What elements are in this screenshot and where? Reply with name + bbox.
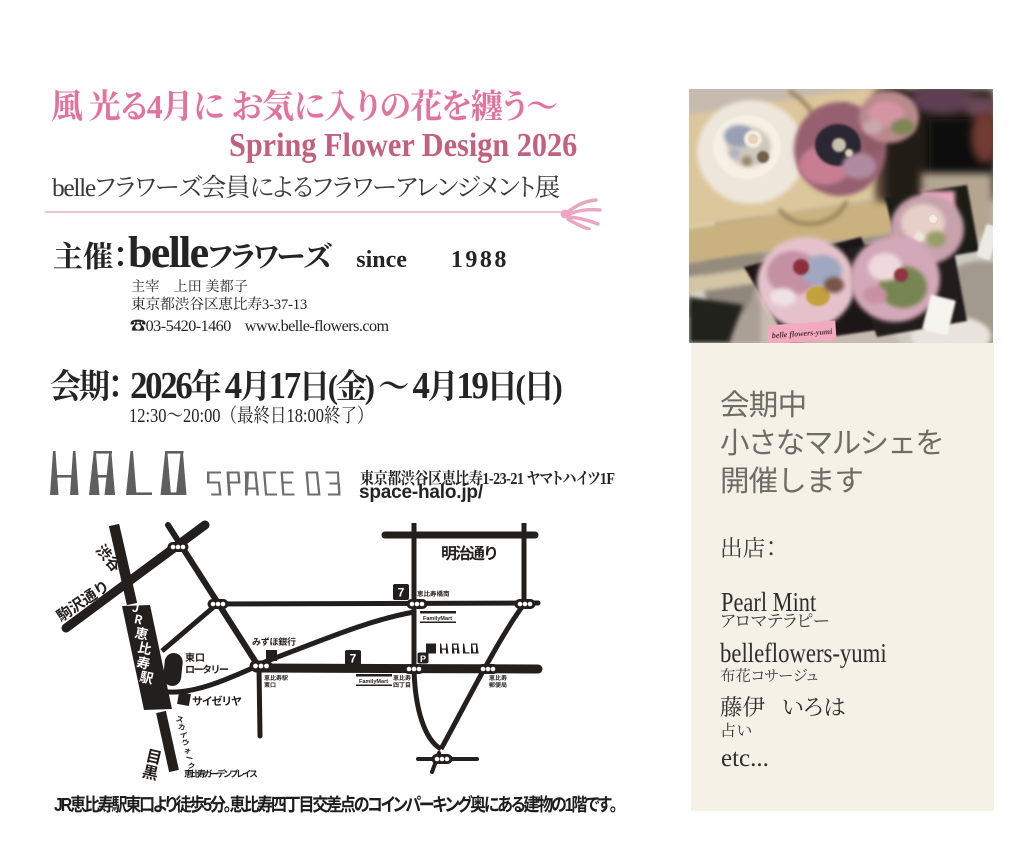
svg-text:恵比寿ガーデンプレイス: 恵比寿ガーデンプレイス [184, 767, 258, 780]
svg-text:黒: 黒 [140, 758, 161, 785]
svg-text:恵比寿橋南: 恵比寿橋南 [417, 588, 450, 598]
svg-text:郵便局: 郵便局 [489, 680, 507, 689]
svg-text:7: 7 [398, 586, 405, 600]
svg-text:四丁目: 四丁目 [393, 680, 411, 689]
svg-text:明治通り: 明治通り [441, 540, 499, 564]
svg-text:P: P [420, 654, 426, 664]
svg-text:7: 7 [350, 652, 357, 666]
svg-text:FamilyMart: FamilyMart [423, 616, 452, 622]
svg-text:サイゼリヤ: サイゼリヤ [192, 693, 242, 709]
svg-text:東口: 東口 [264, 680, 276, 689]
svg-text:みずほ銀行: みずほ銀行 [252, 635, 296, 648]
svg-text:ロータリー: ロータリー [185, 661, 229, 676]
svg-text:FamilyMart: FamilyMart [359, 679, 388, 685]
